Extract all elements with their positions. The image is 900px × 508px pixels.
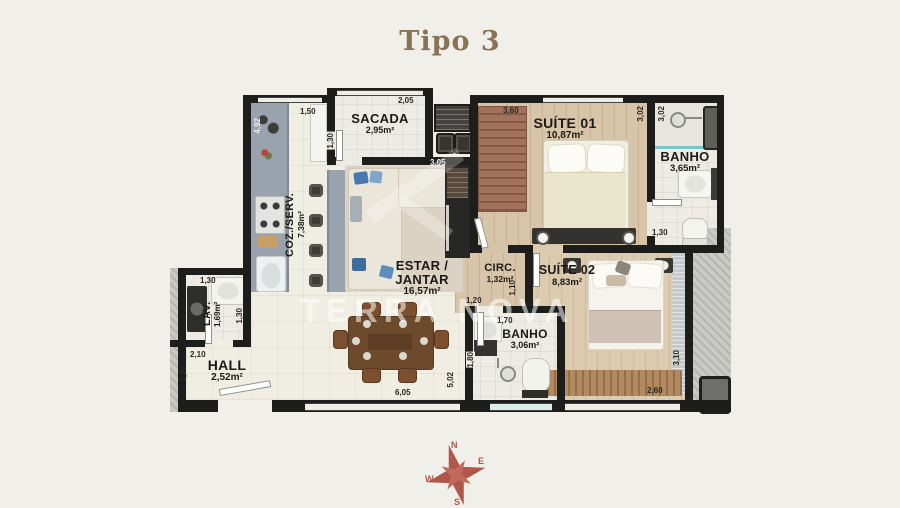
kitchen-plant — [260, 148, 272, 160]
room-name: SUÍTE 02 — [530, 264, 604, 278]
window-living — [305, 403, 460, 411]
room-label-suite02: SUÍTE 02 8,83m² — [530, 264, 604, 288]
door-leaf-banho01 — [652, 199, 682, 206]
toilet-tank-banho02 — [522, 390, 548, 398]
dim-banho01-width: 1,30 — [652, 228, 668, 237]
stool — [309, 274, 323, 287]
window-coz — [258, 97, 322, 103]
stove — [255, 196, 285, 234]
dim-sacada-height: 1,30 — [326, 132, 335, 150]
room-name: HALL — [192, 358, 262, 373]
dining-chair — [434, 330, 449, 349]
room-name: SUÍTE 01 — [505, 116, 625, 131]
dim-banho02-width: 1,70 — [497, 316, 513, 325]
stool — [309, 244, 323, 257]
plate — [363, 352, 371, 360]
dim-hall-width: 2,10 — [190, 350, 206, 359]
room-name: BANHO — [650, 150, 720, 164]
room-name: ESTAR / JANTAR — [392, 259, 452, 287]
compass-n: N — [451, 440, 458, 450]
dim-suite01-height: 3,02 — [636, 106, 645, 122]
room-name: SACADA — [330, 112, 430, 126]
dim-hall-height: 1,20 — [179, 366, 188, 382]
window-banho02 — [490, 403, 552, 411]
door-gap-entrance — [218, 400, 272, 412]
dining-chair — [333, 330, 348, 349]
room-label-hall: HALL 2,52m² — [192, 358, 262, 384]
room-label-circ: CIRC. 1,32m² — [472, 263, 528, 284]
dim-circ-height: 1,10 — [508, 280, 517, 296]
floorplan-page: Tipo 3 — [0, 0, 900, 508]
dim-suite02-height: 3,10 — [672, 350, 681, 366]
room-area: 8,83m² — [530, 278, 604, 288]
kitchen-island — [327, 170, 346, 292]
room-area: 1,32m² — [472, 275, 528, 284]
room-label-estar: ESTAR / JANTAR 16,57m² — [392, 259, 452, 298]
shaft-ladder-box — [434, 104, 471, 132]
room-area: 2,52m² — [192, 373, 262, 384]
dim-estar-height: 5,02 — [446, 372, 455, 388]
dim-banho02-height: 1,80 — [466, 352, 475, 368]
kitchen-sink — [256, 256, 286, 292]
dining-chair — [362, 368, 381, 383]
duvet-suite01 — [544, 172, 626, 235]
wall-segment — [178, 268, 251, 275]
plate — [352, 337, 360, 345]
pillow-suite01 — [586, 143, 625, 174]
dim-hall-bottom: 6,05 — [395, 388, 411, 397]
shower-arm-banho01 — [684, 117, 702, 119]
toilet-banho02 — [522, 358, 550, 393]
dim-lav-height: 1,30 — [235, 308, 244, 324]
dim-lav-width: 1,30 — [200, 276, 216, 285]
sofa-pillow — [352, 258, 366, 271]
plate — [420, 337, 428, 345]
room-area: 3,06m² — [496, 341, 554, 351]
compass-star: N E S W — [424, 438, 488, 506]
pillow-suite01 — [547, 143, 586, 174]
room-label-coz: COZ./SERV. 7,38m² — [285, 160, 306, 290]
page-title: Tipo 3 — [0, 26, 900, 57]
compass-rose: N E S W — [424, 438, 488, 506]
wall-segment — [178, 268, 186, 412]
room-area: 3,65m² — [650, 164, 720, 174]
dim-sacada-width: 2,05 — [398, 96, 414, 105]
dim-shaft: 3,05 — [430, 158, 446, 167]
room-label-sacada: SACADA 2,95m² — [330, 112, 430, 136]
dining-chair — [398, 368, 417, 383]
pillow-suite02 — [627, 262, 663, 289]
dim-suite02-width: 2,60 — [647, 386, 663, 395]
dim-coz-left: 4,92 — [253, 118, 262, 134]
dim-circ-width: 1,20 — [466, 296, 482, 305]
room-label-banho02: BANHO 3,06m² — [496, 328, 554, 351]
stool — [309, 214, 323, 227]
sofa-pillow — [369, 170, 382, 183]
tv-shelf — [447, 168, 468, 198]
room-label-suite01: SUÍTE 01 10,87m² — [505, 116, 625, 142]
room-name: BANHO — [496, 328, 554, 341]
room-label-lav: LAV. 1,69m² — [202, 288, 223, 340]
sofa-throw — [350, 196, 362, 222]
dim-banho01-height: 3,02 — [657, 106, 666, 122]
plate — [399, 352, 407, 360]
room-area: 16,57m² — [392, 287, 452, 298]
dim-suite01-width: 3,60 — [503, 106, 519, 115]
compass-w: W — [425, 474, 434, 484]
compass-e: E — [478, 456, 484, 466]
wall-segment — [685, 245, 693, 412]
accent-pillow-suite02 — [606, 275, 626, 286]
stool — [309, 184, 323, 197]
room-area: 7,38m² — [297, 160, 306, 290]
window-suite02 — [565, 403, 680, 411]
room-area: 1,69m² — [214, 288, 223, 340]
door-gap-suite02 — [533, 245, 563, 253]
compass-s: S — [454, 497, 460, 506]
shower-head-banho01 — [670, 112, 686, 128]
blanket-suite02 — [589, 310, 661, 343]
table-runner — [368, 334, 412, 350]
room-area: 2,95m² — [330, 126, 430, 136]
bench-knob — [536, 231, 550, 245]
cutting-board — [258, 236, 278, 248]
window-suite01 — [543, 97, 623, 103]
room-area: 10,87m² — [505, 131, 625, 142]
bench-knob — [622, 231, 636, 245]
wall-segment — [243, 95, 251, 347]
sofa-pillow — [353, 171, 369, 185]
shower-head-banho02 — [500, 366, 516, 382]
shower-arm-banho02 — [497, 358, 499, 368]
room-label-banho01: BANHO 3,65m² — [650, 150, 720, 174]
dim-coz-top: 1,50 — [300, 107, 316, 116]
